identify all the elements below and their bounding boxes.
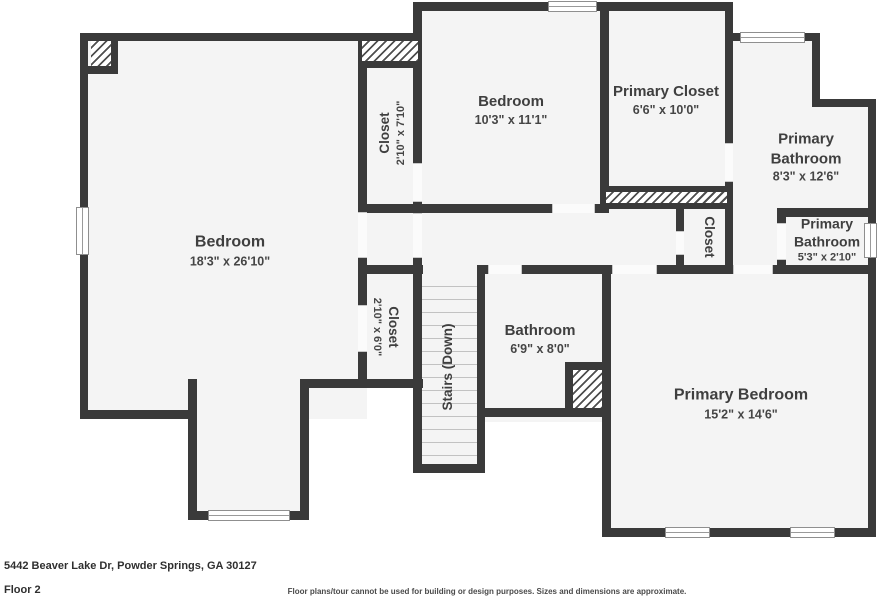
wall-segment bbox=[602, 265, 611, 537]
door-opening bbox=[358, 212, 367, 258]
room-dimensions: 18'3" x 26'10" bbox=[190, 253, 270, 269]
wall-segment bbox=[868, 99, 876, 537]
room-label-primary-bedroom: Primary Bedroom 15'2" x 14'6" bbox=[674, 385, 808, 422]
room-name: Stairs (Down) bbox=[439, 323, 457, 410]
room-label-bedroom-2: Bedroom 10'3" x 11'1" bbox=[475, 92, 548, 128]
room-name: Primary Bedroom bbox=[674, 385, 808, 406]
room-name: Bathroom bbox=[505, 321, 576, 341]
door-opening bbox=[413, 163, 422, 202]
door-opening bbox=[413, 213, 422, 258]
wall-segment bbox=[413, 258, 422, 473]
room-name: Closet bbox=[384, 298, 402, 356]
door-opening bbox=[676, 231, 684, 255]
wall-segment bbox=[413, 2, 422, 163]
room-dimensions: 10'3" x 11'1" bbox=[475, 112, 548, 128]
room-name: Primary Bathroom bbox=[779, 215, 875, 251]
room-label-stairs: Stairs (Down) bbox=[439, 323, 457, 410]
room-name: Bedroom bbox=[475, 92, 548, 112]
room-dimensions: 15'2" x 14'6" bbox=[674, 406, 808, 422]
door-opening bbox=[488, 265, 522, 274]
room-dimensions: 2'10" x 6'0" bbox=[370, 298, 384, 356]
room-fill-primary-bathroom-upper bbox=[725, 33, 820, 107]
wall-segment bbox=[358, 258, 367, 305]
room-label-primary-bathroom: Primary Bathroom 8'3" x 12'6" bbox=[758, 129, 854, 184]
hatch-block bbox=[362, 41, 418, 61]
door-opening bbox=[358, 305, 367, 352]
room-dimensions: 5'3" x 2'10" bbox=[779, 251, 875, 265]
floor-label: Floor 2 bbox=[4, 584, 41, 596]
room-dimensions: 8'3" x 12'6" bbox=[758, 168, 854, 184]
window-marker bbox=[548, 1, 597, 12]
door-opening bbox=[612, 265, 657, 274]
wall-segment bbox=[80, 33, 422, 41]
hatch-block bbox=[91, 41, 111, 66]
wall-segment bbox=[477, 265, 485, 473]
hatch-block bbox=[573, 370, 602, 408]
room-label-closet-lower: Closet 2'10" x 6'0" bbox=[370, 298, 402, 356]
wall-segment bbox=[812, 33, 820, 107]
room-fill-bedroom-1-alcove bbox=[188, 379, 309, 520]
room-name: Closet bbox=[700, 216, 718, 257]
room-label-primary-bathroom-wc: Primary Bathroom 5'3" x 2'10" bbox=[779, 215, 875, 266]
room-label-closet-upper: Closet 2'10" x 7'10" bbox=[376, 101, 408, 166]
wall-segment bbox=[300, 379, 309, 520]
room-dimensions: 6'9" x 8'0" bbox=[505, 341, 576, 357]
room-label-bedroom-1: Bedroom 18'3" x 26'10" bbox=[190, 232, 270, 269]
room-name: Bedroom bbox=[190, 232, 270, 253]
room-label-bathroom: Bathroom 6'9" x 8'0" bbox=[505, 321, 576, 357]
door-opening bbox=[552, 204, 595, 213]
floor-plan-page: Bedroom 18'3" x 26'10" Closet 2'10" x 7'… bbox=[0, 0, 884, 600]
wall-segment bbox=[188, 379, 197, 520]
wall-segment bbox=[80, 410, 197, 419]
door-opening bbox=[725, 143, 733, 182]
room-name: Closet bbox=[376, 101, 394, 166]
window-marker bbox=[790, 527, 835, 538]
room-name: Primary Bathroom bbox=[758, 129, 854, 168]
wall-segment bbox=[812, 99, 876, 107]
wall-segment bbox=[565, 362, 573, 408]
wall-segment bbox=[773, 265, 876, 274]
wall-segment bbox=[110, 41, 118, 74]
disclaimer-text: Floor plans/tour cannot be used for buil… bbox=[288, 587, 687, 596]
wall-segment bbox=[413, 202, 422, 213]
wall-segment bbox=[477, 408, 610, 417]
wall-segment bbox=[358, 204, 552, 213]
wall-segment bbox=[725, 2, 733, 143]
room-name: Primary Closet bbox=[613, 82, 719, 102]
wall-segment bbox=[600, 2, 609, 213]
room-label-hall-closet: Closet bbox=[700, 216, 718, 257]
window-marker bbox=[76, 207, 89, 255]
wall-segment bbox=[676, 208, 684, 231]
wall-segment bbox=[676, 255, 684, 274]
window-marker bbox=[740, 32, 805, 43]
hatch-block bbox=[606, 192, 727, 203]
wall-segment bbox=[358, 352, 367, 388]
room-fill-bedroom-1 bbox=[80, 33, 367, 419]
wall-segment bbox=[657, 265, 733, 274]
room-dimensions: 6'6" x 10'0" bbox=[613, 102, 719, 118]
room-dimensions: 2'10" x 7'10" bbox=[394, 101, 408, 166]
wall-segment bbox=[522, 265, 612, 274]
window-marker bbox=[208, 510, 290, 521]
door-opening bbox=[733, 265, 773, 274]
wall-segment bbox=[413, 464, 485, 473]
window-marker bbox=[665, 527, 710, 538]
room-label-primary-closet: Primary Closet 6'6" x 10'0" bbox=[613, 82, 719, 118]
wall-segment bbox=[600, 203, 733, 209]
address-text: 5442 Beaver Lake Dr, Powder Springs, GA … bbox=[4, 560, 257, 572]
